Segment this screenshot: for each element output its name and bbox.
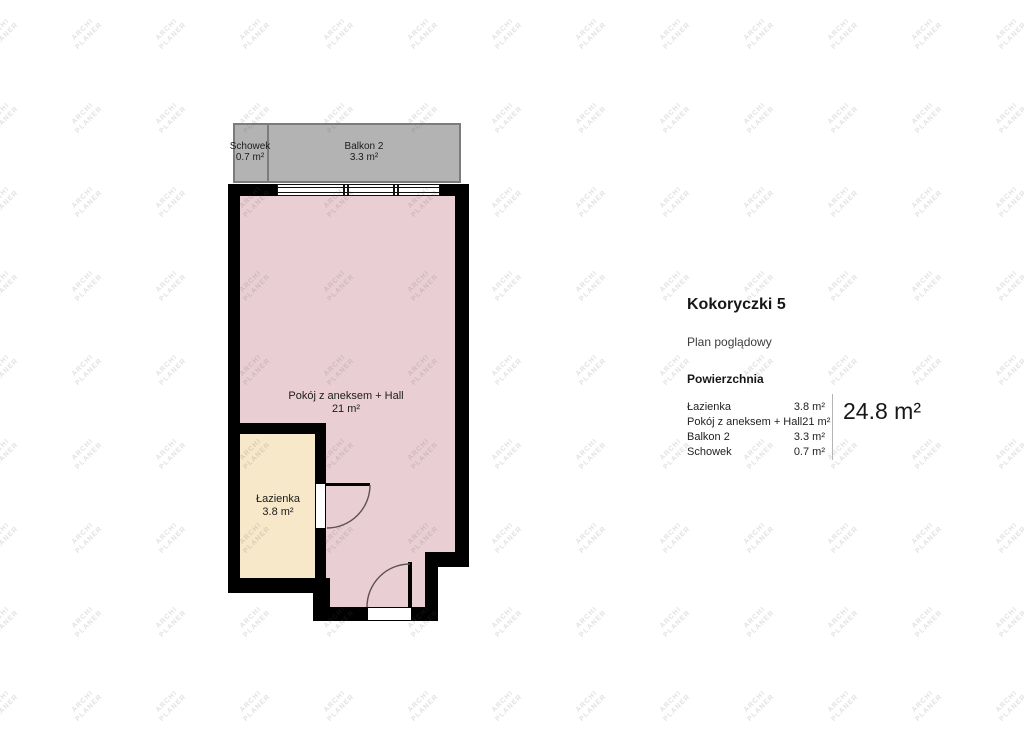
window-mullion [343, 184, 345, 196]
living-room-fill [240, 196, 455, 423]
room-name: Schowek [230, 141, 271, 152]
room-label-pokoj: Pokój z aneksem + Hall 21 m² [288, 390, 403, 415]
entrance-door-leaf [408, 562, 412, 608]
room-area: 0.7 m² [230, 152, 271, 163]
area-row-label: Pokój z aneksem + Hall [687, 415, 802, 430]
window-mullion [347, 184, 349, 196]
room-area: 3.3 m² [345, 152, 384, 163]
window-glazing-line [278, 192, 439, 193]
area-section-header: Powierzchnia [687, 372, 987, 386]
bathroom-wall-segment [240, 423, 326, 434]
area-row-label: Balkon 2 [687, 430, 730, 445]
entrance-door-opening [367, 607, 412, 621]
total-area: 24.8 m² [843, 398, 921, 425]
wall-segment [412, 607, 438, 621]
bathroom-door-opening [315, 483, 326, 529]
floorplan-page: ARCHI PLANERARCHI PLANERARCHI PLANERARCH… [0, 0, 1024, 750]
room-label-schowek: Schowek 0.7 m² [230, 141, 271, 163]
room-area: 21 m² [288, 403, 403, 415]
room-name: Łazienka [256, 493, 300, 506]
room-label-lazienka: Łazienka 3.8 m² [256, 493, 300, 518]
room-label-balkon: Balkon 2 3.3 m² [345, 141, 384, 163]
area-row-value: 21 m² [802, 415, 830, 430]
page-title: Kokoryczki 5 [687, 296, 987, 314]
wall-segment [313, 578, 330, 621]
area-table-row: Schowek 0.7 m² [687, 445, 825, 460]
room-name: Balkon 2 [345, 141, 384, 152]
info-panel: Kokoryczki 5 Plan poglądowy Powierzchnia… [687, 296, 987, 460]
plan-subtitle: Plan poglądowy [687, 335, 987, 349]
window-mullion [393, 184, 395, 196]
wall-segment [228, 184, 277, 196]
room-area: 3.8 m² [256, 506, 300, 518]
area-summary: Łazienka 3.8 m² Pokój z aneksem + Hall 2… [687, 400, 987, 460]
area-row-label: Łazienka [687, 400, 731, 415]
bathroom-wall-segment [315, 528, 326, 580]
divider-line [832, 394, 833, 460]
window-glazing-line [278, 187, 439, 188]
area-row-value: 3.3 m² [794, 430, 825, 445]
room-name: Pokój z aneksem + Hall [288, 390, 403, 403]
wall-segment [455, 190, 469, 567]
bathroom-wall-segment [315, 423, 326, 484]
area-table-row: Łazienka 3.8 m² [687, 400, 825, 415]
window-band [277, 184, 440, 196]
area-row-value: 3.8 m² [794, 400, 825, 415]
area-table-row: Balkon 2 3.3 m² [687, 430, 825, 445]
area-table: Łazienka 3.8 m² Pokój z aneksem + Hall 2… [687, 400, 825, 460]
window-mullion [397, 184, 399, 196]
bathroom-door-leaf [326, 483, 370, 486]
area-row-label: Schowek [687, 445, 732, 460]
area-row-value: 0.7 m² [794, 445, 825, 460]
living-room-fill [326, 423, 455, 552]
wall-segment [228, 184, 240, 593]
area-table-row: Pokój z aneksem + Hall 21 m² [687, 415, 825, 430]
